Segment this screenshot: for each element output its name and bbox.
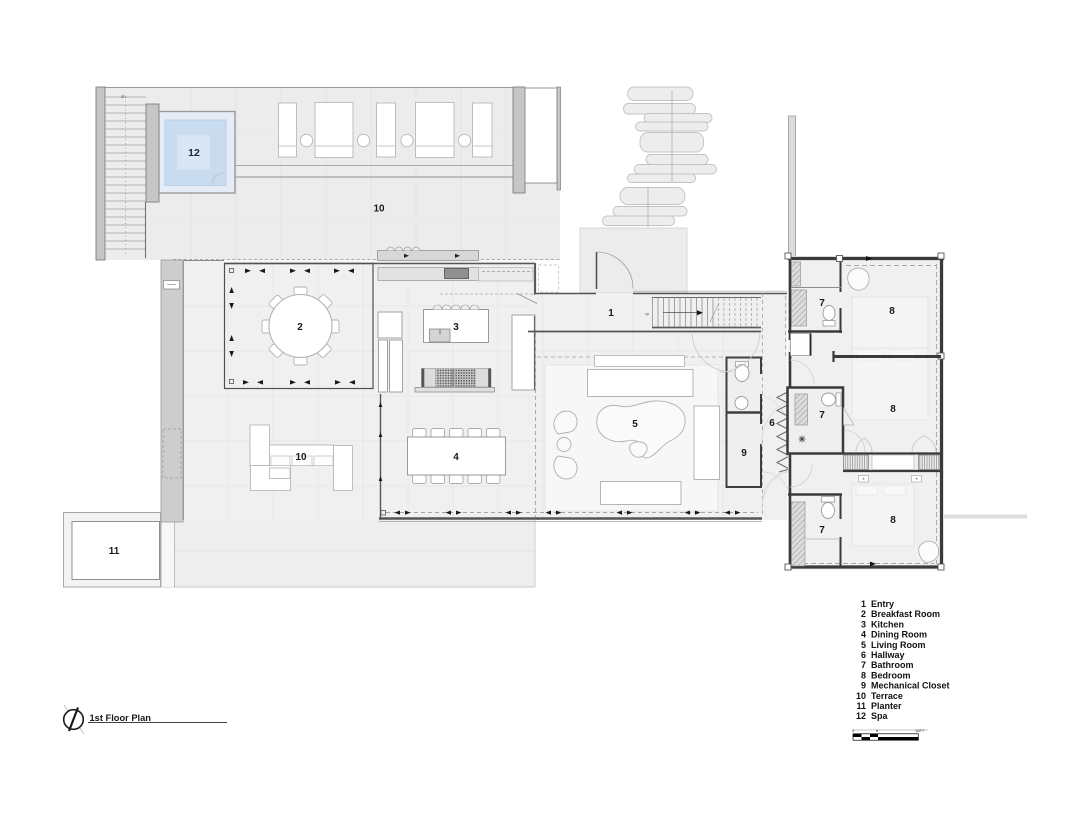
svg-text:8: 8 bbox=[890, 404, 896, 415]
svg-text:2: 2 bbox=[297, 322, 303, 333]
svg-text:11: 11 bbox=[109, 546, 120, 557]
svg-text:1: 1 bbox=[608, 308, 614, 319]
svg-text:3: 3 bbox=[453, 322, 459, 333]
svg-text:1: 1 bbox=[861, 599, 866, 609]
svg-text:1st Floor Plan: 1st Floor Plan bbox=[90, 713, 152, 723]
svg-text:16FT: 16FT bbox=[915, 728, 925, 733]
svg-text:7: 7 bbox=[819, 410, 825, 421]
svg-text:12: 12 bbox=[188, 147, 200, 159]
svg-text:6: 6 bbox=[769, 418, 775, 429]
svg-text:Bedroom: Bedroom bbox=[871, 670, 911, 680]
svg-text:Dining Room: Dining Room bbox=[871, 630, 927, 640]
svg-text:Mechanical Closet: Mechanical Closet bbox=[871, 681, 950, 691]
svg-text:10: 10 bbox=[856, 691, 866, 701]
svg-text:10: 10 bbox=[373, 204, 385, 215]
svg-text:5: 5 bbox=[861, 640, 866, 650]
svg-text:Kitchen: Kitchen bbox=[871, 619, 904, 629]
svg-text:dn: dn bbox=[121, 94, 126, 99]
svg-text:10: 10 bbox=[295, 452, 307, 463]
svg-text:Bathroom: Bathroom bbox=[871, 660, 914, 670]
svg-text:9: 9 bbox=[861, 681, 866, 691]
svg-text:up: up bbox=[645, 312, 649, 316]
svg-text:Living Room: Living Room bbox=[871, 640, 926, 650]
svg-text:5: 5 bbox=[632, 419, 638, 430]
svg-text:Terrace: Terrace bbox=[871, 691, 903, 701]
svg-text:Planter: Planter bbox=[871, 701, 902, 711]
svg-text:7: 7 bbox=[861, 660, 866, 670]
svg-text:11: 11 bbox=[856, 701, 866, 711]
svg-text:9: 9 bbox=[741, 448, 747, 459]
svg-text:3: 3 bbox=[861, 619, 866, 629]
svg-text:8: 8 bbox=[861, 670, 866, 680]
svg-text:8: 8 bbox=[890, 515, 896, 526]
svg-text:Hallway: Hallway bbox=[871, 650, 905, 660]
svg-text:7: 7 bbox=[819, 298, 825, 309]
svg-text:8: 8 bbox=[889, 306, 895, 317]
svg-text:Breakfast Room: Breakfast Room bbox=[871, 609, 940, 619]
svg-text:2: 2 bbox=[861, 609, 866, 619]
svg-text:Entry: Entry bbox=[871, 599, 894, 609]
svg-text:7: 7 bbox=[819, 525, 825, 536]
svg-text:6: 6 bbox=[861, 650, 866, 660]
svg-text:4: 4 bbox=[453, 452, 459, 463]
svg-text:12: 12 bbox=[856, 711, 866, 721]
svg-text:4: 4 bbox=[861, 630, 866, 640]
svg-text:Spa: Spa bbox=[871, 711, 889, 721]
